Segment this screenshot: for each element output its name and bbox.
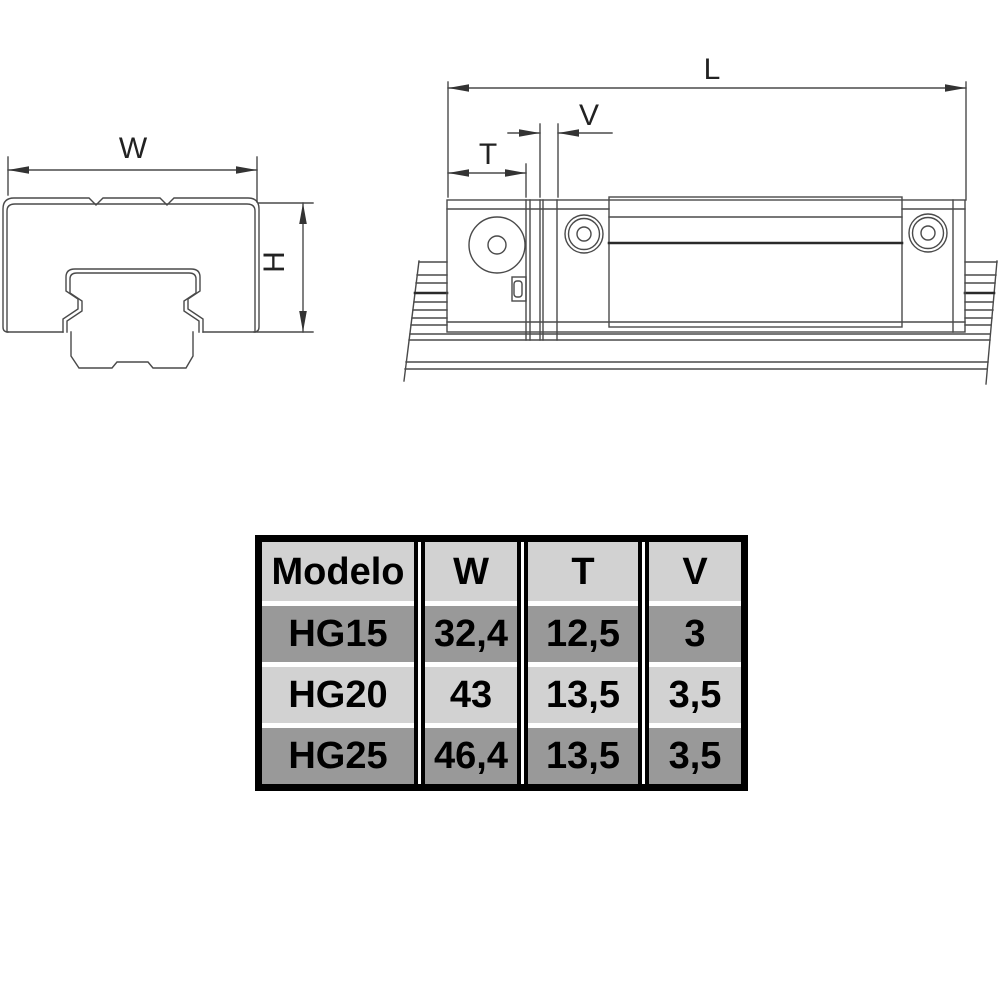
dim-t-arrow-right [505,169,526,177]
bolt-hole-left-ring [569,219,600,250]
dim-t: T [448,138,526,197]
block-inner-contour [7,204,255,332]
dim-h: H [258,203,313,332]
spec-table-column-model: Modelo HG15 HG20 HG25 [262,542,418,784]
dim-v-arrow-right [558,129,579,137]
spec-table-header-v: V [649,542,741,601]
bolt-hole-left-outer [565,215,603,253]
block-outer-contour [3,198,259,332]
rail-profile [71,332,193,368]
spec-table-column-w: W 32,4 43 46,4 [421,542,521,784]
dim-label-v: V [579,99,599,132]
bolt-hole-right-ring [913,218,944,249]
dim-h-arrow-bottom [299,311,307,332]
dim-h-arrow-top [299,203,307,224]
table-cell-model-hg25: HG25 [262,728,414,784]
grease-nipple-outer [469,217,525,273]
table-cell-v-hg15: 3 [649,606,741,662]
front-view: W H [3,132,313,368]
dim-label-l: L [704,53,721,86]
rail-cut-diagonal-right [986,261,997,384]
dim-w: W [8,132,257,202]
dim-w-arrow-right [236,166,257,174]
dim-l-arrow-left [448,84,469,92]
rail-cavity-outer [63,269,203,332]
table-cell-w-hg20: 43 [425,667,517,723]
bolt-hole-right-outer [909,214,947,252]
side-view: L V T [404,53,997,384]
spec-table-header-t: T [528,542,638,601]
block-side [447,197,965,340]
dim-l-arrow-right [945,84,966,92]
dim-w-arrow-left [8,166,29,174]
spec-table-column-v: V 3 3,5 3,5 [645,542,741,784]
table-cell-model-hg15: HG15 [262,606,414,662]
spec-table-header-w: W [425,542,517,601]
table-cell-w-hg25: 46,4 [425,728,517,784]
dim-label-h: H [258,251,291,273]
dim-t-arrow-left [448,169,469,177]
dim-v: V [508,99,612,197]
rail-cavity-inner [67,273,199,332]
rail-cut-diagonal-left [404,261,419,381]
grease-nipple-center [488,236,506,254]
spec-table: Modelo HG15 HG20 HG25 W 32,4 43 46,4 T 1… [255,535,748,791]
table-cell-model-hg20: HG20 [262,667,414,723]
table-cell-v-hg20: 3,5 [649,667,741,723]
table-cell-w-hg15: 32,4 [425,606,517,662]
table-cell-v-hg25: 3,5 [649,728,741,784]
grease-port-inner [514,281,522,297]
spec-table-column-t: T 12,5 13,5 13,5 [524,542,642,784]
table-cell-t-hg20: 13,5 [528,667,638,723]
table-cell-t-hg15: 12,5 [528,606,638,662]
dim-label-t: T [479,138,497,171]
spec-table-header-modelo: Modelo [262,542,414,601]
table-cell-t-hg25: 13,5 [528,728,638,784]
page: W H [0,0,1000,1000]
bolt-hole-right-center [921,226,935,240]
block-outline [447,200,965,332]
technical-drawing: W H [0,0,1000,1000]
dim-label-w: W [119,132,148,165]
dim-v-arrow-left [519,129,540,137]
bolt-hole-left-center [577,227,591,241]
